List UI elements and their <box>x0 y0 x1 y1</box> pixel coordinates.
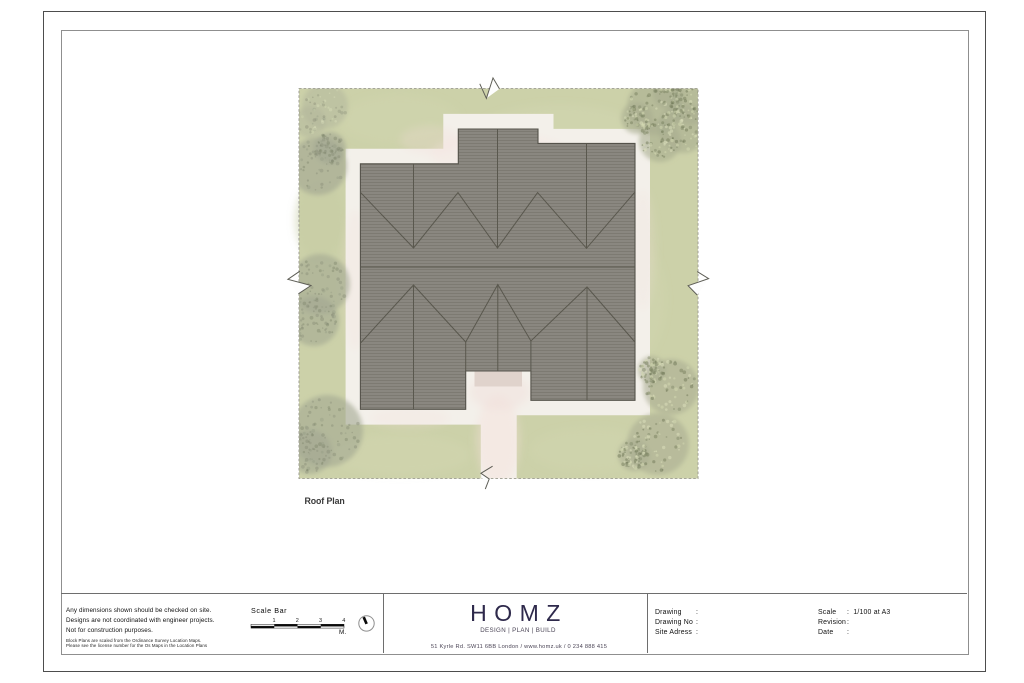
svg-text:M.: M. <box>339 629 346 636</box>
svg-text:3: 3 <box>319 618 322 624</box>
svg-text:2: 2 <box>296 618 299 624</box>
svg-text:4: 4 <box>342 618 345 624</box>
svg-text:1: 1 <box>273 618 276 624</box>
